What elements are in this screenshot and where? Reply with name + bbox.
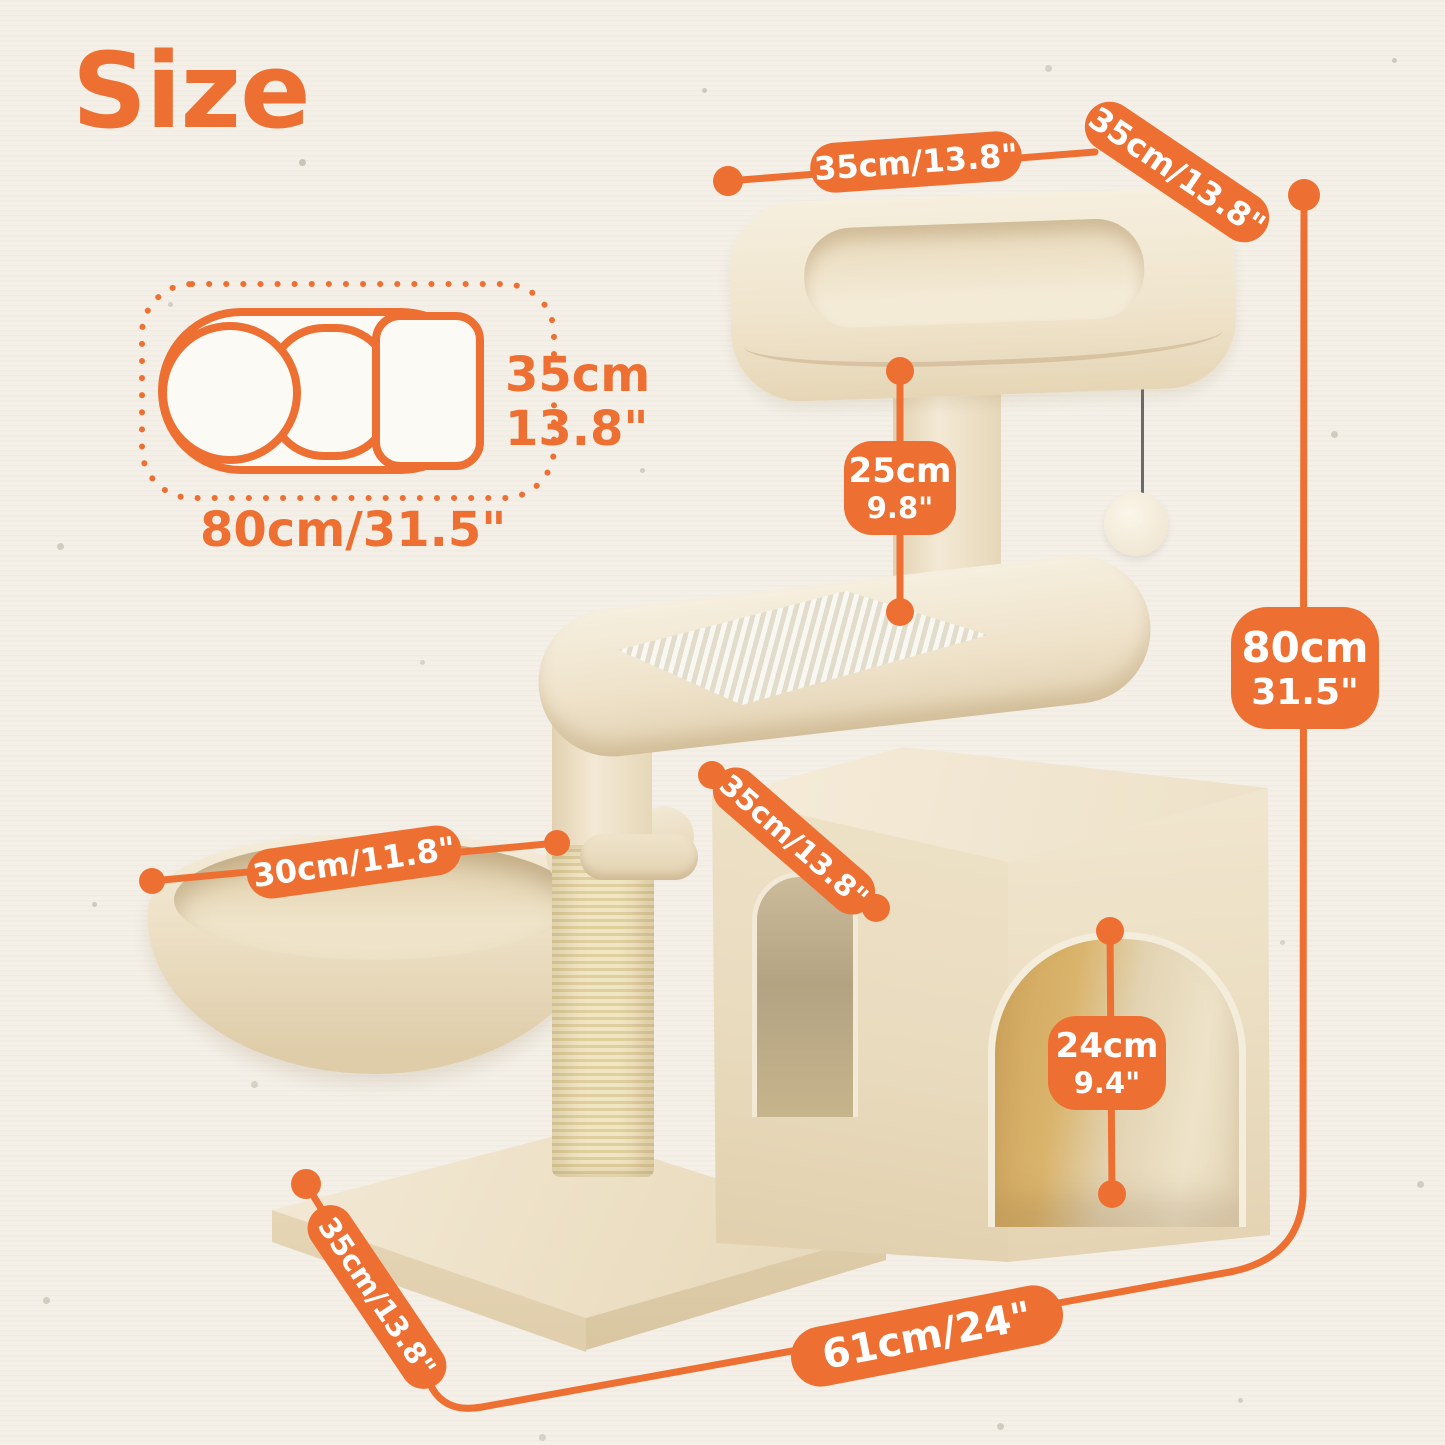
footprint-rect-shape — [376, 316, 480, 466]
pompom-string — [1141, 372, 1144, 496]
sisal-scratching-post — [552, 845, 654, 1177]
dim-badge-total-height: 80cm 31.5" — [1231, 607, 1379, 729]
opening-cm: 24cm — [1056, 1026, 1159, 1066]
footprint-depth-label: 35cm 13.8" — [505, 348, 650, 456]
dim-pill-perch-width: 35cm/13.8" — [809, 130, 1024, 195]
footprint-width-label: 80cm/31.5" — [200, 502, 506, 558]
paper-speckles — [0, 0, 5, 5]
footprint-circle-shape — [163, 326, 297, 460]
footprint-diagram — [138, 280, 558, 504]
pompom-ball — [1104, 492, 1168, 556]
top-perch — [727, 186, 1239, 404]
basket-ring — [580, 834, 698, 880]
footprint-depth-cm: 35cm — [505, 348, 650, 402]
footprint-depth-in: 13.8" — [505, 402, 650, 456]
opening-in: 9.4" — [1074, 1066, 1140, 1100]
height-in: 31.5" — [1251, 672, 1359, 713]
dim-badge-upper-post-height: 25cm 9.8" — [844, 441, 956, 535]
dim-badge-opening-height: 24cm 9.4" — [1048, 1016, 1166, 1110]
height-cm: 80cm — [1241, 623, 1368, 672]
upper-post-cm: 25cm — [849, 451, 952, 491]
page-title: Size — [72, 30, 310, 152]
size-infographic: Size 35cm 13.8" 80cm/31.5" — [0, 0, 1445, 1445]
upper-post-in: 9.8" — [867, 491, 933, 525]
